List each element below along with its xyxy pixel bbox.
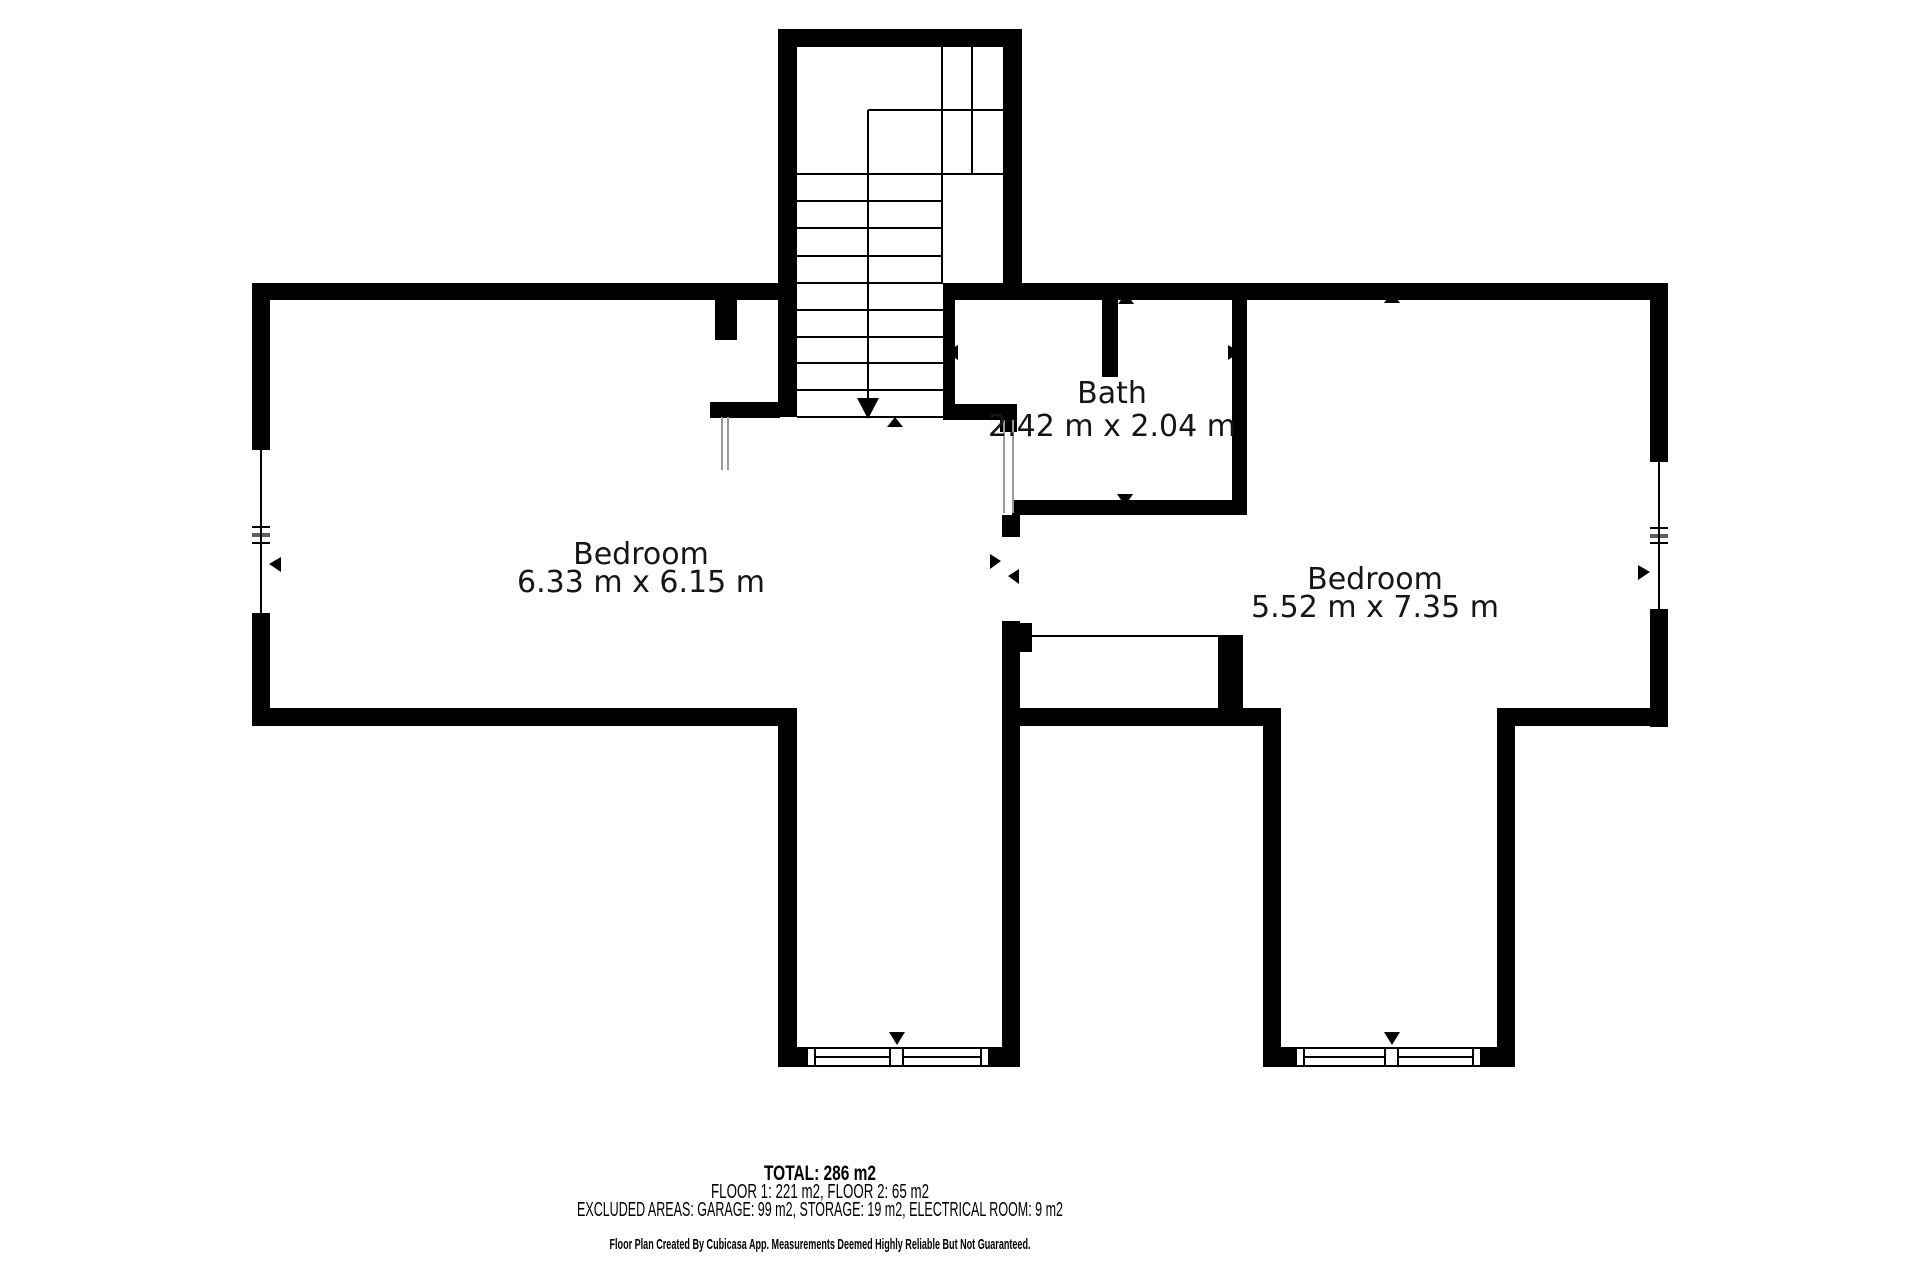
wall-bottom-center	[1002, 708, 1281, 726]
wall-bath-stub	[1102, 293, 1118, 377]
wall-divider-upper	[1002, 515, 1020, 537]
stairs-down-arrow-icon	[857, 398, 879, 419]
floor-plan-canvas: Bedroom 6.33 m x 6.15 m Bath 2.42 m x 2.…	[0, 0, 1920, 1280]
room-label-bath: Bath	[1077, 376, 1147, 411]
window-marker-left-icon	[269, 557, 281, 572]
wall-ext-left-east	[1002, 727, 1020, 1067]
disclaimer-footer: Floor Plan Created By Cubicasa App. Meas…	[610, 1236, 1031, 1253]
wall-stairwell-left	[778, 29, 797, 417]
window-marker-bottom-right-icon	[1384, 1032, 1400, 1045]
room-dims-bath: 2.42 m x 2.04 m	[988, 409, 1236, 444]
summary-excluded-areas: EXCLUDED AREAS: GARAGE: 99 m2, STORAGE: …	[577, 1199, 1063, 1221]
windows	[252, 448, 1668, 1067]
summary-block: TOTAL: 286 m2 FLOOR 1: 221 m2, FLOOR 2: …	[577, 1162, 1063, 1253]
wall-bedroom-left-bottom	[252, 708, 797, 726]
wall-ext-right-west	[1263, 708, 1281, 1067]
stairs-entry-marker-icon	[887, 417, 903, 427]
floor-plan-page: Bedroom 6.33 m x 6.15 m Bath 2.42 m x 2.…	[0, 0, 1920, 1280]
room-dims-bedroom-right: 5.52 m x 7.35 m	[1251, 590, 1499, 625]
walls	[252, 29, 1668, 1067]
wall-closet-right	[1218, 635, 1243, 713]
wall-bedroom-right-bottom	[1497, 708, 1668, 726]
wall-ext-right-east	[1497, 708, 1515, 1067]
window-marker-right-icon	[1638, 565, 1650, 580]
room-labels: Bedroom 6.33 m x 6.15 m Bath 2.42 m x 2.…	[517, 376, 1499, 625]
wall-alcove-bottom	[710, 402, 780, 418]
window-bottom-right	[1297, 1047, 1480, 1067]
wall-stairwell-top	[778, 29, 1022, 47]
wall-top-left	[252, 283, 797, 300]
wall-closet-left-stub	[1020, 623, 1032, 652]
staircase	[797, 47, 1003, 427]
door-marker-hall-east-icon	[1008, 569, 1019, 584]
wall-ext-left-west	[778, 708, 797, 1067]
window-marker-bottom-left-icon	[889, 1032, 905, 1045]
wall-bath-bottom	[1012, 500, 1247, 515]
window-right-wall	[1650, 460, 1668, 611]
door-marker-hall-west-icon	[990, 554, 1001, 569]
window-bottom-left	[808, 1047, 988, 1067]
wall-top-right	[943, 283, 1668, 300]
wall-alcove-stub	[715, 300, 737, 340]
room-dims-bedroom-left: 6.33 m x 6.15 m	[517, 565, 765, 600]
glass-partitions	[722, 417, 1218, 636]
wall-stairwell-right-upper	[1003, 29, 1022, 285]
wall-bath-right	[1232, 293, 1247, 515]
window-left-wall	[252, 448, 270, 615]
